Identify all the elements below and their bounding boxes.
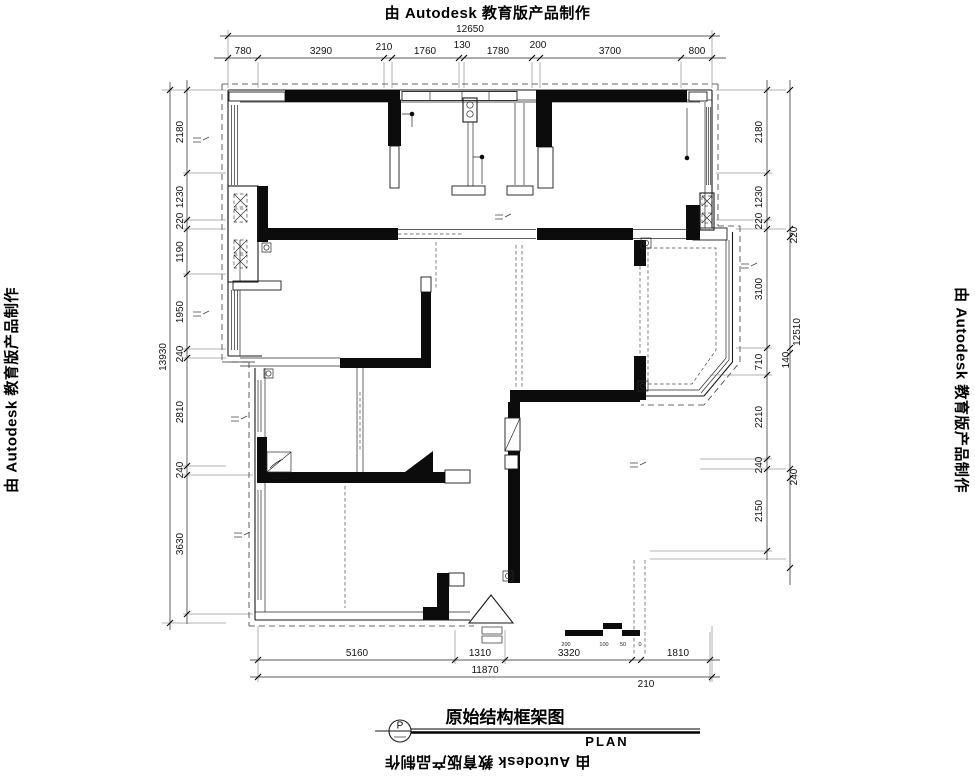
- title-bubble-letter: P: [397, 721, 404, 732]
- flue-shaft-left: [228, 186, 258, 282]
- shower-tray: [267, 452, 291, 472]
- hall-window: [505, 418, 520, 469]
- dim-right-6: 240: [754, 456, 765, 473]
- dim-left-7: 240: [175, 461, 186, 478]
- scale-bar: 200 100 50 0: [561, 623, 641, 648]
- entry-arrow: [469, 595, 513, 643]
- dim-right-outer-3: 240: [789, 468, 800, 485]
- drawing-title: 原始结构框架图: [446, 707, 565, 727]
- dim-chain-right: 2180 1230 220 3100 710 2210 240 2150 220…: [650, 80, 803, 585]
- dim-bottom-inset: 210: [638, 679, 655, 690]
- dim-top-6: 200: [530, 40, 547, 51]
- dim-bottom-2: 3320: [558, 648, 581, 659]
- dim-left-0: 2180: [175, 120, 186, 143]
- dim-bottom-3: 1810: [667, 648, 690, 659]
- dim-left-1: 1230: [175, 185, 186, 208]
- dim-right-outer-0: 220: [789, 226, 800, 243]
- scale-label-3: 0: [638, 642, 641, 648]
- dim-top-2: 210: [376, 42, 393, 53]
- dim-right-7: 2150: [754, 499, 765, 522]
- dim-top-overall: 12650: [456, 24, 484, 35]
- dim-bottom-1: 1310: [469, 648, 492, 659]
- dim-bottom-overall: 11870: [471, 665, 499, 676]
- dim-left-overall: 13930: [158, 343, 169, 371]
- dim-left-4: 1950: [175, 300, 186, 323]
- dim-right-4: 710: [754, 353, 765, 370]
- dim-right-3: 3100: [754, 277, 765, 300]
- dim-left-2: 220: [175, 212, 186, 229]
- floor-plan-drawing: 200 100 50 0 12650 780 3290 210 1760 130…: [0, 0, 975, 780]
- dim-right-2: 220: [754, 212, 765, 229]
- dim-top-3: 1760: [414, 46, 437, 57]
- wall-lines: [228, 90, 733, 620]
- dim-right-outer-1: 12510: [792, 318, 803, 346]
- dim-right-0: 2180: [754, 120, 765, 143]
- kitchen-flue: [463, 98, 477, 122]
- dim-left-5: 240: [175, 345, 186, 362]
- dashed-outline: [222, 84, 740, 655]
- scale-label-1: 100: [599, 642, 608, 648]
- dim-left-3: 1190: [175, 241, 186, 263]
- column-markers: [262, 238, 651, 581]
- dim-chain-left: 2180 1230 220 1190 1950 240 2810 240 363…: [158, 80, 253, 630]
- dim-top-1: 3290: [310, 46, 333, 57]
- title-block: P 原始结构框架图 PLAN: [375, 707, 700, 749]
- dim-chain-top: 12650 780 3290 210 1760 130 1780 200 370…: [214, 24, 726, 88]
- scale-label-2: 50: [620, 642, 626, 648]
- dim-top-0: 780: [235, 46, 252, 57]
- dim-top-7: 3700: [599, 46, 622, 57]
- drawing-title-en: PLAN: [585, 734, 628, 749]
- dim-bottom-0: 5160: [346, 648, 369, 659]
- fixtures: 200 100 50 0: [193, 98, 757, 648]
- dim-top-4: 130: [454, 40, 471, 51]
- dim-left-8: 3630: [175, 532, 186, 555]
- dim-top-5: 1780: [487, 46, 510, 57]
- dim-left-6: 2810: [175, 400, 186, 423]
- structural-walls: [257, 90, 700, 620]
- dim-chain-bottom: 5160 1310 3320 1810 11870 210: [250, 626, 720, 690]
- dim-right-1: 1230: [754, 185, 765, 208]
- dim-right-outer-2: 140: [781, 351, 792, 368]
- cad-sheet: 由 Autodesk 教育版产品制作 由 Autodesk 教育版产品制作 由 …: [0, 0, 975, 780]
- dim-right-5: 2210: [754, 405, 765, 428]
- dim-top-8: 800: [689, 46, 706, 57]
